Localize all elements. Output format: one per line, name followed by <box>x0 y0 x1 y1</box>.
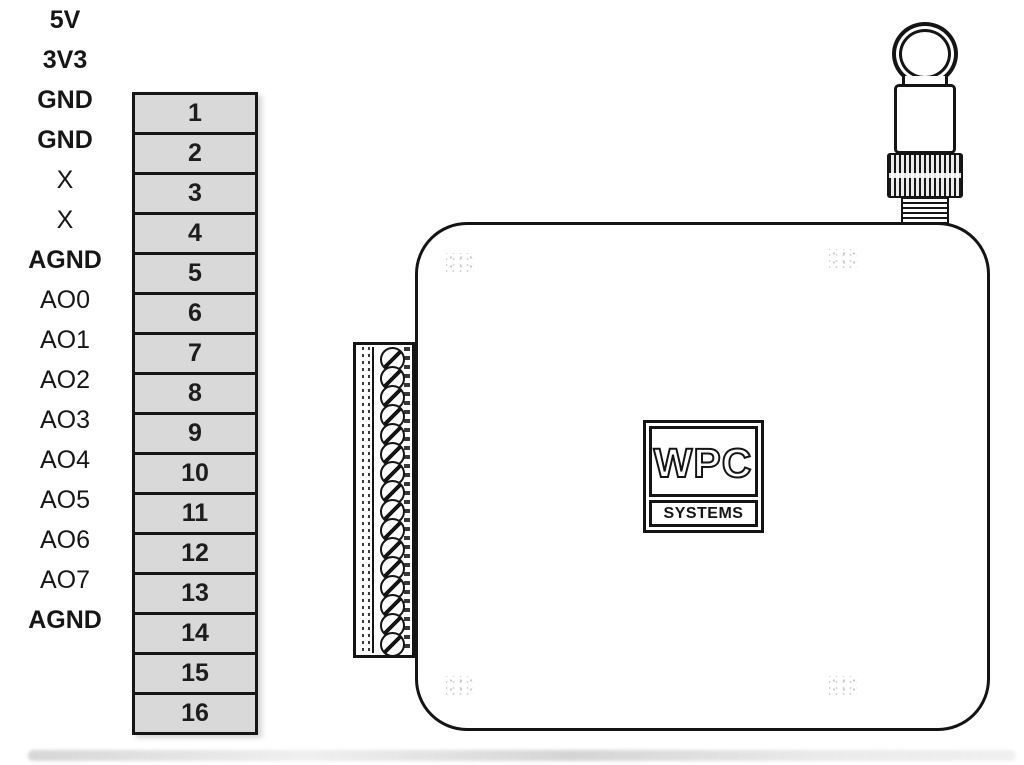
terminal-rail <box>359 347 374 653</box>
pin-cell-8: 8 <box>135 375 255 415</box>
pin-label-13: AO5 <box>0 480 130 520</box>
pin-label-3: GND <box>0 80 130 120</box>
wpc-logo-text: WPC <box>654 440 753 486</box>
pin-label-2: 3V3 <box>0 40 130 80</box>
pin-label-12: AO4 <box>0 440 130 480</box>
pin-label-4: GND <box>0 120 130 160</box>
pin-cell-11: 11 <box>135 495 255 535</box>
corner-speck-bottom-right <box>829 676 857 696</box>
terminal-block-connector <box>353 342 415 658</box>
pin-cell-16: 16 <box>135 695 255 732</box>
pin-cell-9: 9 <box>135 415 255 455</box>
terminal-screw-icon <box>380 632 405 657</box>
pin-label-6: X <box>0 200 130 240</box>
pin-label-14: AO6 <box>0 520 130 560</box>
pin-number-table: 12345678910111213141516 <box>132 92 258 735</box>
pin-label-1: 5V <box>0 0 130 40</box>
pin-label-16: AGND <box>0 600 130 640</box>
pin-cell-13: 13 <box>135 575 255 615</box>
scan-artifact-band <box>28 750 1016 761</box>
pin-label-11: AO3 <box>0 400 130 440</box>
pin-label-9: AO1 <box>0 320 130 360</box>
pin-cell-3: 3 <box>135 175 255 215</box>
pin-label-5: X <box>0 160 130 200</box>
terminal-screws <box>377 347 407 653</box>
pin-label-7: AGND <box>0 240 130 280</box>
pinout-diagram: 5V3V3GNDGNDXXAGNDAO0AO1AO2AO3AO4AO5AO6AO… <box>0 0 1024 765</box>
antenna-knurled-nut <box>887 153 963 198</box>
corner-speck-top-right <box>829 249 857 269</box>
pin-label-8: AO0 <box>0 280 130 320</box>
wpc-logo-systems-text: SYSTEMS <box>649 500 758 527</box>
pin-label-10: AO2 <box>0 360 130 400</box>
pin-cell-6: 6 <box>135 295 255 335</box>
terminal-serration <box>404 347 410 653</box>
corner-speck-bottom-left <box>446 676 474 696</box>
pin-cell-4: 4 <box>135 215 255 255</box>
corner-speck-top-left <box>446 253 474 273</box>
pin-cell-2: 2 <box>135 135 255 175</box>
pin-cell-10: 10 <box>135 455 255 495</box>
antenna-body <box>894 84 956 154</box>
pin-cell-5: 5 <box>135 255 255 295</box>
pin-label-column: 5V3V3GNDGNDXXAGNDAO0AO1AO2AO3AO4AO5AO6AO… <box>0 0 130 640</box>
pin-cell-7: 7 <box>135 335 255 375</box>
wpc-logo-mark: WPC <box>649 426 758 497</box>
pin-cell-12: 12 <box>135 535 255 575</box>
pin-cell-14: 14 <box>135 615 255 655</box>
pin-label-15: AO7 <box>0 560 130 600</box>
pin-cell-1: 1 <box>135 95 255 135</box>
pin-cell-15: 15 <box>135 655 255 695</box>
antenna-thread <box>901 197 949 224</box>
wpc-logo: WPC SYSTEMS <box>643 420 764 533</box>
